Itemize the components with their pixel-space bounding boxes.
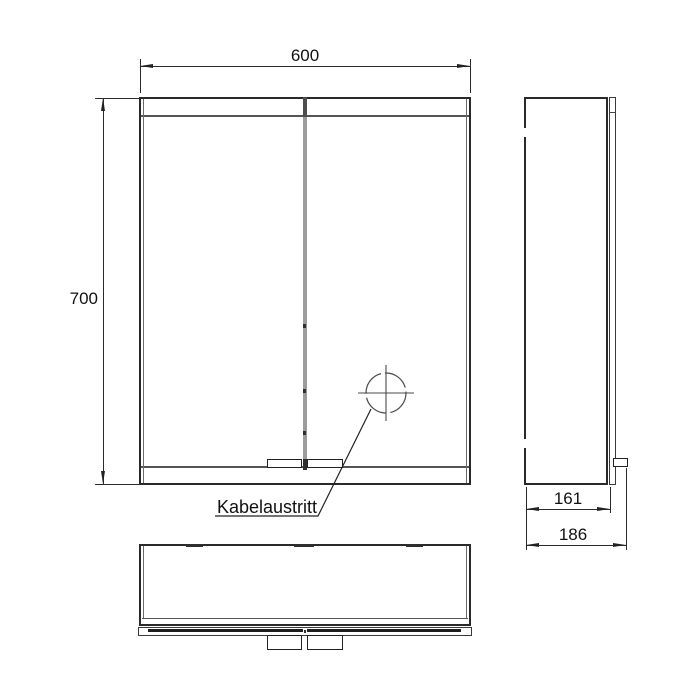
bottom-door-gap-dot	[304, 630, 306, 633]
dim-depth-total-label: 186	[550, 526, 596, 543]
dim-width-line	[140, 66, 470, 67]
front-left-inner-line	[143, 99, 144, 483]
front-door-divider	[303, 98, 307, 470]
dim-depth-body-arrow-right	[597, 507, 610, 511]
bottom-left-door-handle	[267, 635, 302, 650]
dim-depth-ext-left	[526, 487, 527, 550]
side-door-top-tick	[609, 112, 616, 113]
bottom-right-door-handle	[307, 635, 343, 650]
bottom-cabinet-body	[139, 544, 471, 626]
dim-height-label: 700	[62, 290, 98, 307]
bottom-left-inner-line	[143, 546, 144, 618]
dim-depth-total-ext-right	[626, 468, 627, 550]
dim-depth-body-label: 161	[546, 490, 590, 507]
bottom-mount-bracket-left	[186, 544, 203, 548]
divider-bottom-segment	[303, 459, 307, 470]
side-wall-bracket-notch-top	[523, 128, 527, 137]
bottom-mount-bracket-right	[406, 544, 423, 548]
dim-height-arrow-top	[101, 98, 105, 111]
bottom-inner-front-line	[142, 618, 468, 619]
dim-width-arrow-right	[457, 64, 470, 68]
dim-width-arrow-left	[140, 64, 153, 68]
side-cabinet-body	[524, 97, 608, 485]
front-left-door-handle	[267, 459, 302, 468]
front-right-inner-line	[466, 99, 467, 483]
dim-height-arrow-bottom	[101, 471, 105, 484]
dim-depth-total-arrow-right	[613, 543, 626, 547]
divider-hinge-dot-3	[303, 431, 306, 435]
side-door-handle-profile	[613, 458, 628, 467]
side-wall-bracket-notch-bottom	[523, 439, 527, 448]
dim-depth-total-arrow-left	[526, 543, 539, 547]
divider-hinge-dot-1	[303, 324, 306, 328]
dim-height-line	[103, 98, 104, 484]
dim-depth-body-arrow-left	[526, 507, 539, 511]
bottom-mount-bracket-center	[294, 544, 314, 548]
dim-depth-total-line	[526, 545, 626, 546]
divider-hinge-dot-2	[303, 389, 306, 393]
front-right-door-handle	[307, 459, 343, 468]
front-door-divider-top-segment	[303, 97, 307, 117]
technical-drawing-sheet: 600 700 161 186	[0, 0, 700, 700]
cable-outlet-label: Kabelaustritt	[217, 498, 317, 516]
side-mirror-door-panel	[609, 97, 616, 485]
dim-width-label: 600	[285, 47, 325, 64]
bottom-right-inner-line	[466, 546, 467, 618]
